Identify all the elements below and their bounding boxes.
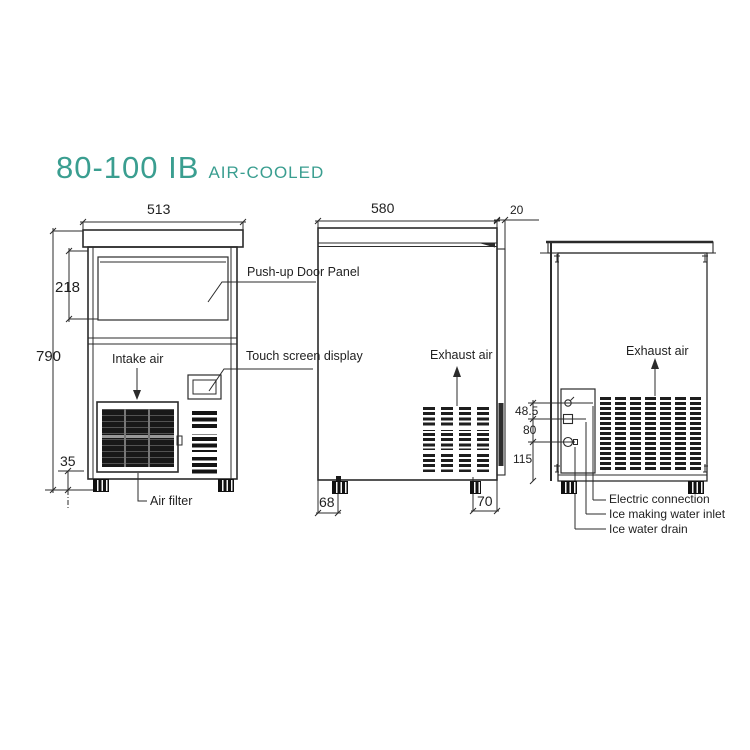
front-right-foot bbox=[218, 479, 234, 492]
label-intake-air: Intake air bbox=[112, 352, 163, 366]
label-air-filter: Air filter bbox=[150, 494, 192, 508]
touch-leader-line bbox=[209, 369, 313, 391]
dim-foot-height: 35 bbox=[60, 453, 76, 469]
connection-box bbox=[561, 389, 595, 473]
front-side-vents bbox=[192, 411, 217, 475]
label-exhaust-air-back: Exhaust air bbox=[626, 344, 689, 358]
label-touch-screen: Touch screen display bbox=[246, 349, 363, 363]
touch-screen-display bbox=[188, 375, 221, 399]
filter-leader-line bbox=[138, 473, 147, 501]
side-front-foot bbox=[332, 481, 348, 494]
drawing-linework bbox=[0, 0, 750, 750]
exhaust-air-arrow-side bbox=[453, 366, 461, 406]
front-left-foot bbox=[93, 479, 109, 492]
front-view-drawing bbox=[45, 219, 316, 508]
back-left-foot bbox=[561, 481, 577, 494]
dim-depth: 580 bbox=[371, 200, 394, 216]
dim-total-height: 790 bbox=[36, 348, 61, 365]
back-vent-grille bbox=[600, 397, 704, 470]
label-water-inlet: Ice making water inlet bbox=[609, 507, 725, 521]
front-top-lid bbox=[83, 230, 243, 247]
dim-rear-panel: 20 bbox=[510, 203, 523, 217]
dim-front-foot-offset: 68 bbox=[319, 494, 335, 510]
dim-depth-lines bbox=[315, 218, 500, 228]
dim-door-height: 218 bbox=[55, 279, 80, 296]
door-leader-line bbox=[208, 282, 316, 302]
dim-front-width: 513 bbox=[147, 201, 170, 217]
air-filter-grille bbox=[102, 409, 174, 467]
label-electric-connection: Electric connection bbox=[609, 492, 710, 506]
label-push-up-door: Push-up Door Panel bbox=[247, 265, 360, 279]
intake-air-arrow bbox=[133, 368, 141, 400]
ice-maker-dimension-drawing: 80-100 IB AIR-COOLED bbox=[0, 0, 750, 750]
label-exhaust-air-side: Exhaust air bbox=[430, 348, 493, 362]
electric-connection-fitting bbox=[565, 397, 574, 406]
dim-rear-foot-offset: 70 bbox=[477, 493, 493, 509]
back-top-band bbox=[548, 242, 713, 253]
dim-rear-panel-lines bbox=[494, 217, 539, 249]
dim-electric-offset: 48.5 bbox=[515, 404, 538, 418]
push-up-door-panel bbox=[98, 257, 228, 320]
dim-inlet-offset: 80 bbox=[523, 423, 536, 437]
dim-front-width-lines bbox=[80, 219, 246, 230]
exhaust-air-arrow-back bbox=[651, 358, 659, 396]
label-water-drain: Ice water drain bbox=[609, 522, 688, 536]
dim-drain-offset: 115 bbox=[513, 452, 532, 466]
side-vent-grille bbox=[423, 407, 491, 472]
